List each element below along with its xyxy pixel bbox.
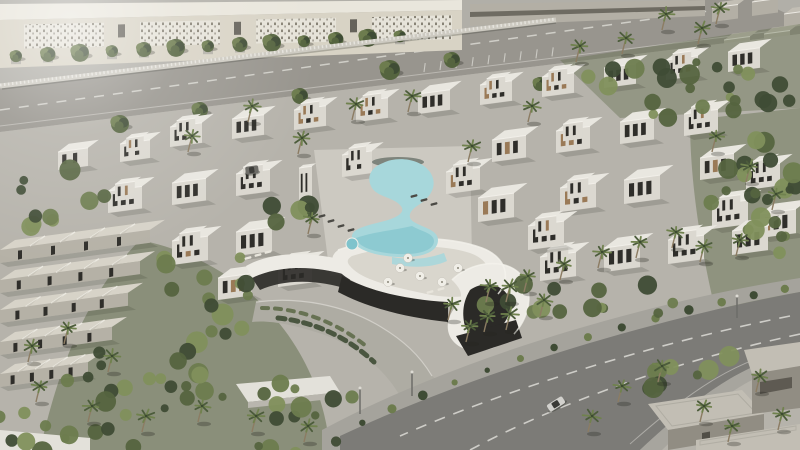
- scene-canvas: [0, 0, 800, 450]
- aerial-render-residential-community: [0, 0, 800, 450]
